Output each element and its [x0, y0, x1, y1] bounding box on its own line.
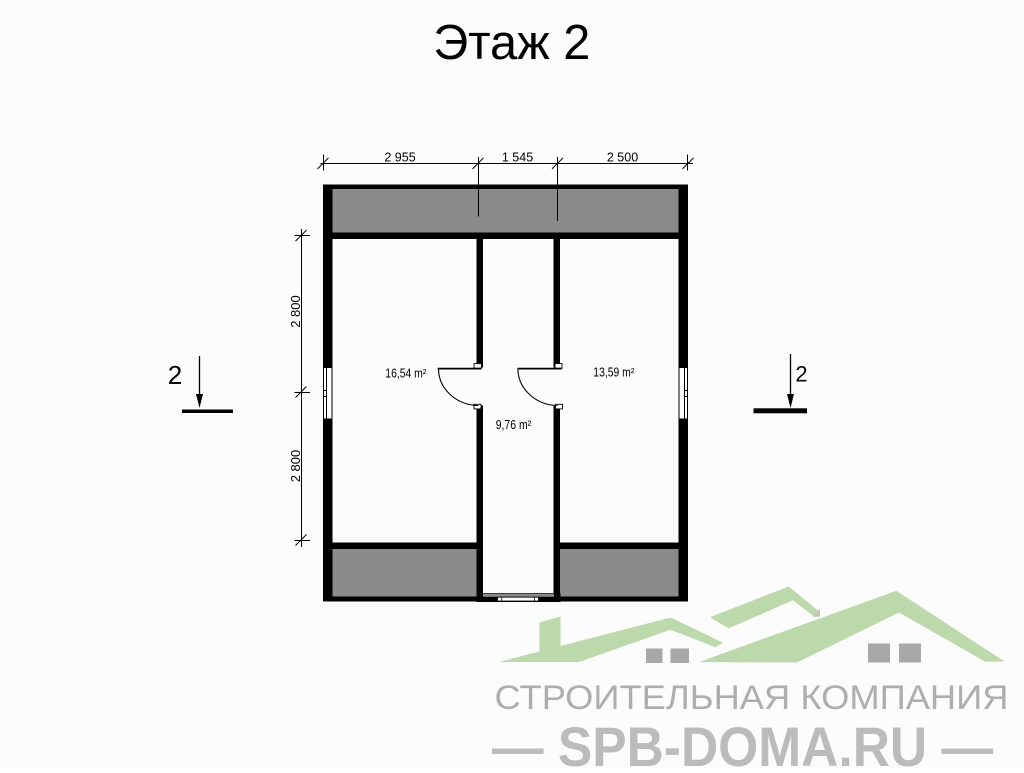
svg-text:СТРОИТЕЛЬНАЯ КОМПАНИЯ: СТРОИТЕЛЬНАЯ КОМПАНИЯ: [495, 679, 1009, 717]
svg-text:— SPB-DOMA.RU —: — SPB-DOMA.RU —: [492, 715, 993, 768]
svg-text:2 800: 2 800: [288, 450, 303, 483]
svg-text:2 500: 2 500: [607, 151, 638, 165]
svg-text:2: 2: [795, 362, 807, 387]
svg-text:1 545: 1 545: [502, 151, 533, 165]
svg-text:Этаж 2: Этаж 2: [433, 15, 590, 70]
svg-text:9,76 m²: 9,76 m²: [496, 418, 532, 432]
svg-text:13,59 m²: 13,59 m²: [593, 366, 634, 380]
svg-text:2 955: 2 955: [384, 151, 415, 165]
svg-text:2: 2: [168, 360, 182, 390]
svg-text:2 800: 2 800: [288, 295, 303, 328]
svg-text:16,54 m²: 16,54 m²: [385, 367, 426, 381]
